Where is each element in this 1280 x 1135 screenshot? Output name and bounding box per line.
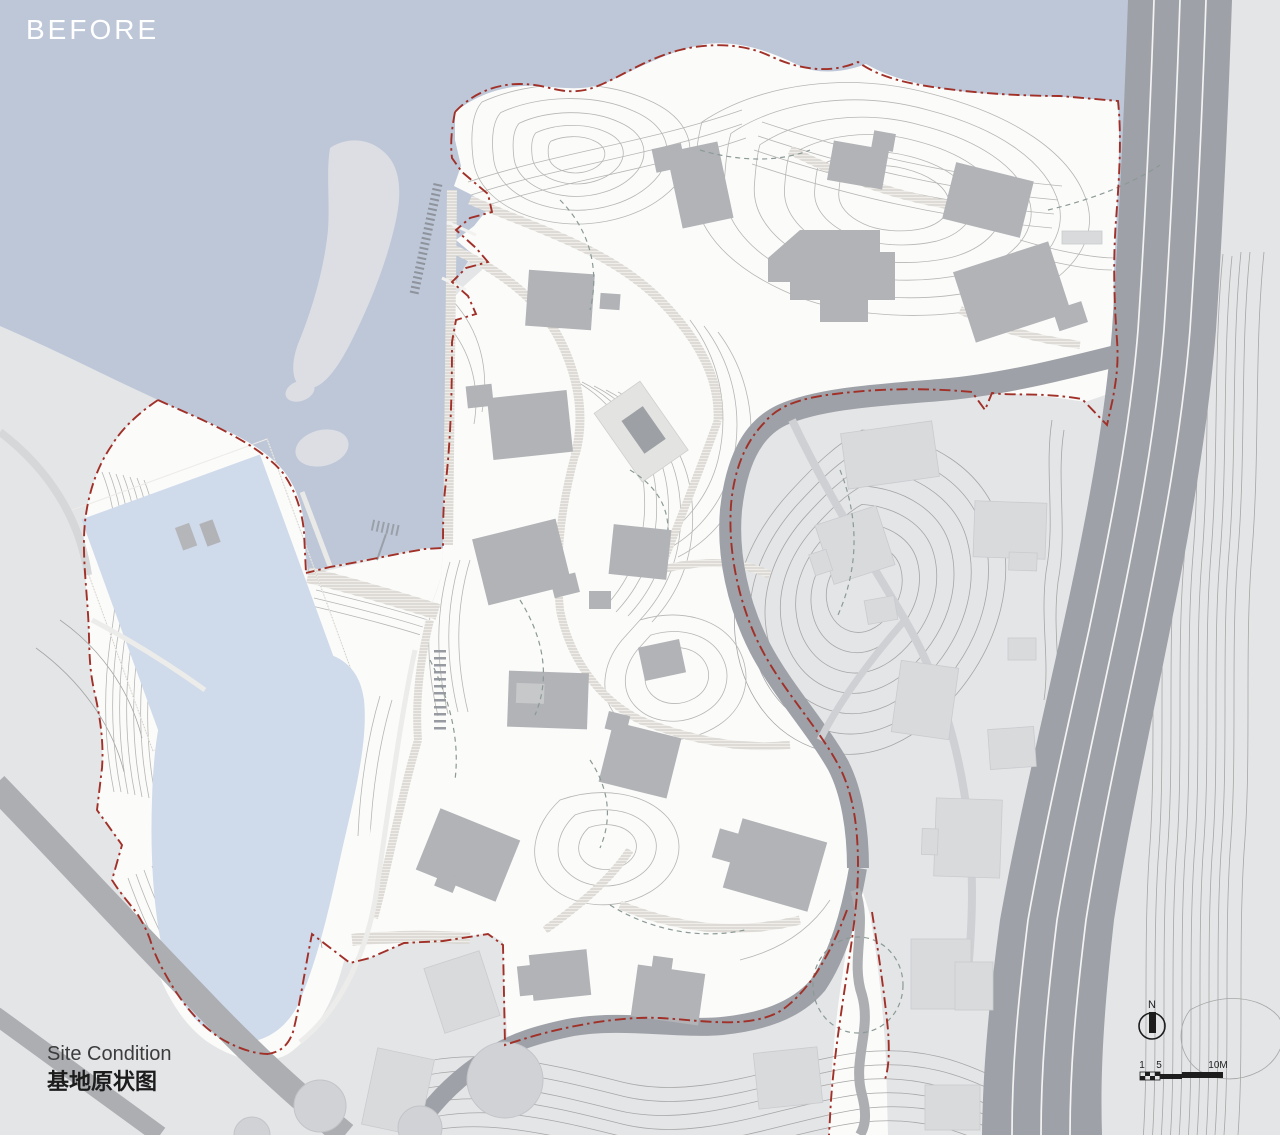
site-plan-map: N 1 5 10M	[0, 0, 1280, 1135]
scale-tick-10m: 10M	[1208, 1060, 1227, 1071]
site-plan-page: N 1 5 10M BEFORE Site Condition 基地原状图	[0, 0, 1280, 1135]
north-label: N	[1148, 999, 1156, 1011]
scale-tick-5: 5	[1156, 1060, 1162, 1071]
drawing-caption: Site Condition 基地原状图	[47, 1042, 172, 1095]
scale-tick-1: 1	[1139, 1060, 1145, 1071]
caption-english: Site Condition	[47, 1042, 172, 1066]
caption-chinese: 基地原状图	[47, 1069, 172, 1095]
phase-title: BEFORE	[26, 14, 159, 46]
